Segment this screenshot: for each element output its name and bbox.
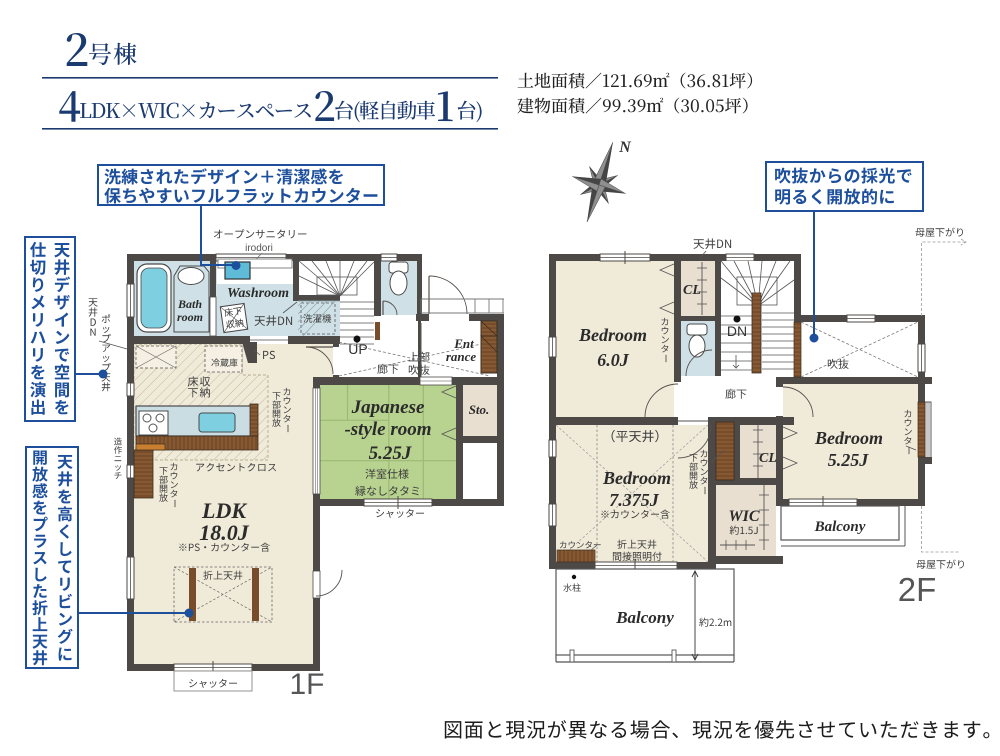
svg-text:Bedroom: Bedroom (814, 428, 883, 448)
svg-text:WIC: WIC (728, 508, 759, 525)
svg-text:Washroom: Washroom (227, 286, 289, 301)
svg-text:irodori: irodori (245, 243, 273, 254)
svg-text:room: room (177, 310, 203, 324)
svg-text:Balcony: Balcony (814, 519, 866, 535)
svg-text:Sto.: Sto. (469, 402, 490, 417)
svg-text:rance: rance (446, 349, 477, 364)
svg-text:6.0J: 6.0J (597, 350, 630, 370)
svg-text:7.375J: 7.375J (609, 490, 660, 510)
svg-text:DN: DN (727, 323, 747, 339)
svg-text:N: N (618, 139, 632, 156)
svg-text:5.25J: 5.25J (369, 443, 412, 464)
svg-text:5.25J: 5.25J (828, 450, 870, 470)
svg-text:Bedroom: Bedroom (602, 468, 671, 488)
svg-text:CL: CL (683, 283, 701, 298)
svg-text:18.0J: 18.0J (199, 520, 250, 545)
svg-text:Japanese: Japanese (351, 397, 425, 418)
svg-text:1F: 1F (289, 668, 324, 701)
svg-text:UP: UP (348, 341, 367, 357)
svg-text:CL: CL (759, 451, 777, 466)
svg-text:Bedroom: Bedroom (578, 325, 647, 345)
svg-text:Balcony: Balcony (615, 608, 674, 627)
svg-text:2F: 2F (898, 571, 937, 608)
svg-text:Bath: Bath (177, 297, 202, 311)
svg-text:-style room: -style room (344, 419, 431, 440)
